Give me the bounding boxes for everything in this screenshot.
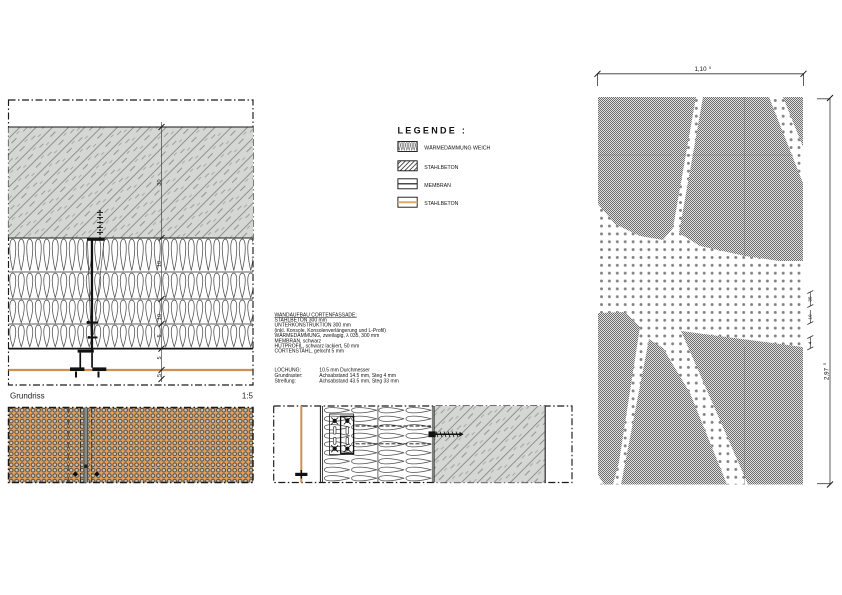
svg-text:Grundriss: Grundriss [10,392,45,401]
svg-text:WÄRMEDÄMMUNG WEICH: WÄRMEDÄMMUNG WEICH [424,145,490,152]
svg-text:10: 10 [157,261,163,267]
svg-text:Streifung:: Streifung: [275,378,296,384]
svg-text:10: 10 [157,314,163,320]
svg-text:Achsabstand 43.5 mm, Steg 33 m: Achsabstand 43.5 mm, Steg 33 mm [319,378,398,384]
svg-text:5: 5 [157,356,163,359]
svg-text:MEMBRAN: MEMBRAN [424,183,451,189]
svg-text:10: 10 [807,314,812,320]
svg-text:5: 5 [709,66,711,70]
svg-text:2,97: 2,97 [824,367,831,380]
svg-text:35: 35 [807,296,812,302]
svg-text:5: 5 [157,334,163,337]
svg-text:5: 5 [157,374,163,377]
svg-text:STAHLBETON: STAHLBETON [424,201,458,207]
svg-text:STAHLBETON: STAHLBETON [424,165,458,171]
svg-text:30: 30 [157,179,163,185]
svg-text:4: 4 [807,341,812,344]
svg-text:LEGENDE :: LEGENDE : [398,126,468,136]
svg-text:1:5: 1:5 [242,392,254,401]
svg-text:5: 5 [823,363,827,365]
svg-text:1,10: 1,10 [694,66,707,73]
svg-text:CORTENSTAHL, gelocht 5 mm: CORTENSTAHL, gelocht 5 mm [275,349,345,355]
